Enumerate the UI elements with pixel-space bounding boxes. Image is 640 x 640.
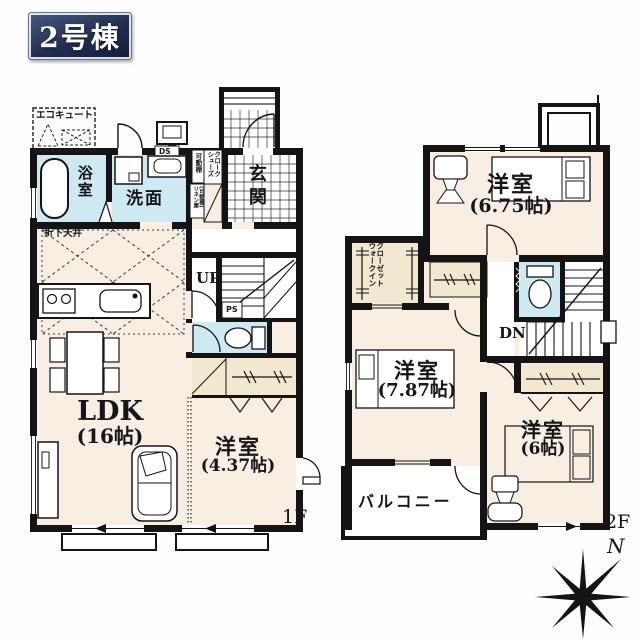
stair-window-bump	[601, 321, 616, 343]
floorplan-drawing	[0, 0, 640, 640]
kitchen-counter	[38, 284, 150, 318]
pipe-space-label: PS	[226, 306, 238, 314]
balcony-label: バルコニー	[358, 494, 453, 511]
chair-icon	[50, 368, 65, 392]
toilet1f-icon	[225, 327, 265, 349]
bedroom675-label: 洋室 (6.75帖)	[450, 174, 572, 217]
chair-icon	[50, 338, 65, 362]
floor2-label: 2F	[605, 513, 630, 533]
window-step-right	[176, 534, 268, 550]
ds-label: DS	[159, 148, 171, 156]
compass-star-icon	[535, 549, 631, 639]
intercom-panel-icon	[157, 122, 187, 144]
floorplan-page: 2号棟 エコキュート 浴室 洗面 DS 可動棚 シューズ クローク リネン庫 (…	[0, 0, 640, 640]
building-badge: 2号棟	[28, 12, 132, 60]
window-slide-arrow-2f	[566, 522, 577, 531]
ecocute-label: エコキュート	[36, 111, 93, 121]
window-step-left	[62, 534, 156, 550]
washroom-label: 洗面	[126, 191, 164, 209]
sofa-icon	[132, 446, 177, 521]
roof-bay	[540, 95, 598, 148]
bathroom-label: 浴室	[76, 165, 92, 199]
closet2fb-floor	[521, 363, 603, 393]
dropped-ceiling-label: 折下天井	[44, 229, 82, 239]
entrance-label: 玄関	[246, 164, 265, 210]
bedroom6-label: 洋室 (6帖)	[487, 420, 599, 459]
chair-icon	[104, 338, 119, 362]
stairs-down-label: DN	[499, 326, 526, 342]
floor1-label: 1F	[282, 508, 307, 528]
dining-table-icon	[67, 332, 103, 394]
back-door-arc	[118, 124, 142, 148]
ldk-label: LDK (16帖)	[60, 398, 160, 447]
tv-board-icon	[38, 442, 58, 518]
wic-label: ウォークイン クローゼット	[368, 242, 384, 287]
building-badge-label: 2号棟	[39, 16, 120, 56]
floor1-plan	[30, 87, 320, 550]
stairs-up-label: UP	[196, 271, 220, 287]
floor2-plan	[341, 95, 616, 540]
linen-closet-label: リネン庫 (可動棚)	[192, 186, 204, 208]
chair-icon	[104, 368, 119, 392]
shoes-closet-label: シューズ クローク	[206, 151, 220, 177]
washing-machine-icon	[115, 157, 142, 184]
movable-shelf-label: 可動棚	[194, 153, 201, 173]
bathtub-icon	[41, 159, 68, 218]
bedroom1f-door	[303, 458, 320, 484]
bedroom787-label: 洋室 (7.87帖)	[358, 360, 476, 401]
bedroom1f-label: 洋室 (4.37帖)	[184, 436, 292, 476]
wash-basin-icon	[148, 156, 186, 177]
compass-north-label: N	[607, 536, 625, 557]
